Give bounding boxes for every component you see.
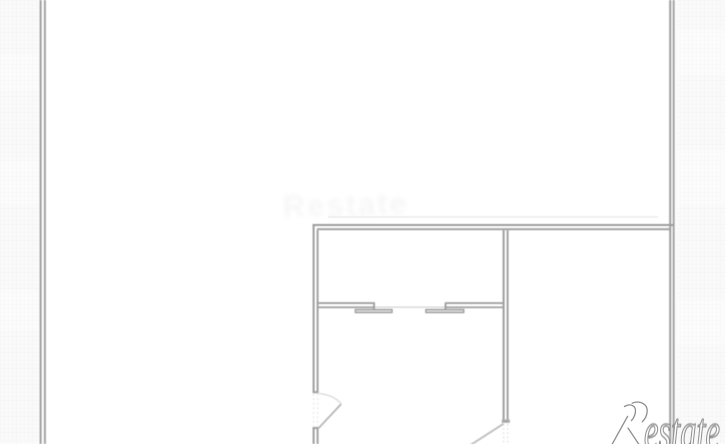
- svg-text:estate: estate: [644, 403, 720, 444]
- svg-text:Restate: Restate: [282, 186, 409, 224]
